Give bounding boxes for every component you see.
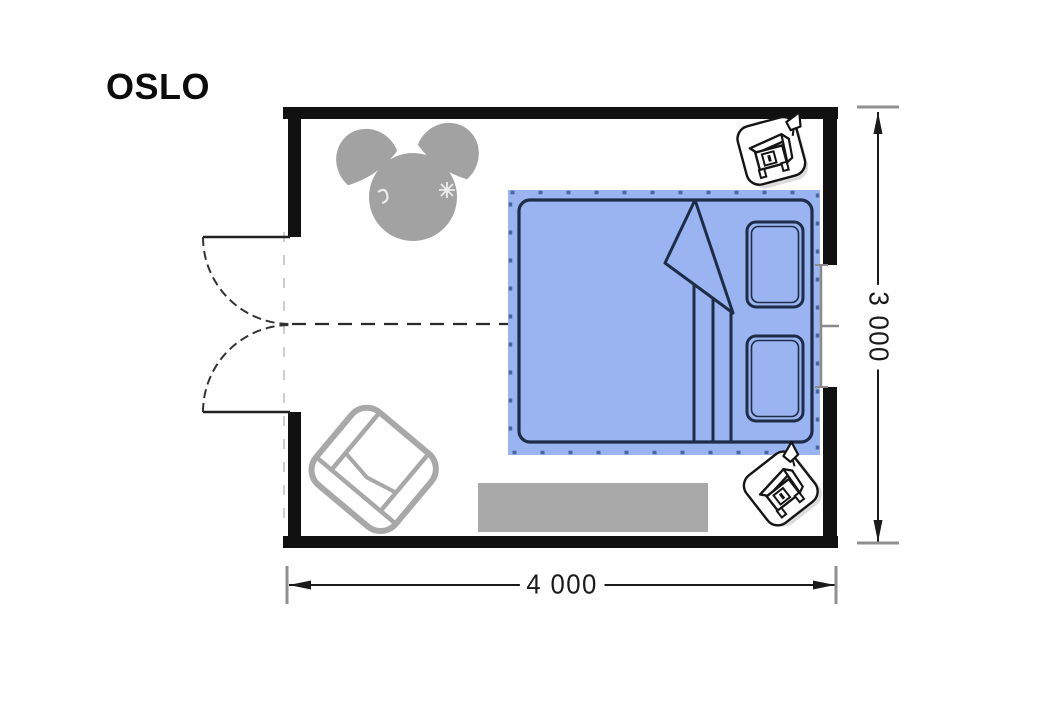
arrow-down-icon [874, 520, 883, 542]
round-table [369, 153, 457, 241]
bed-highlight [508, 190, 820, 455]
height-dimension-label: 3 000 [863, 285, 894, 369]
nightstand-with-lamp-bottom [739, 442, 832, 534]
rug [478, 483, 708, 532]
wall-bottom [283, 536, 838, 548]
wall-right-upper [823, 107, 837, 265]
double-door [203, 237, 290, 412]
armchair [303, 400, 444, 540]
floor-plan-canvas: OSLO 4 000 3 000 [0, 0, 1040, 720]
table-set [319, 104, 496, 241]
table-decor-mark [439, 182, 455, 198]
double-bed [508, 190, 820, 455]
wall-top [283, 107, 838, 119]
wall-left-upper [288, 107, 301, 237]
nightstand-with-lamp-top [735, 112, 817, 192]
width-dimension-label: 4 000 [520, 570, 604, 601]
door-swing-arc [203, 237, 290, 324]
door-swing-arc [203, 325, 290, 412]
arrow-right-icon [813, 581, 835, 590]
arrow-left-icon [289, 581, 311, 590]
wall-left-lower [288, 412, 301, 536]
wall-right-lower [823, 387, 837, 536]
plan-title: OSLO [106, 69, 210, 105]
arrow-up-icon [874, 112, 883, 134]
